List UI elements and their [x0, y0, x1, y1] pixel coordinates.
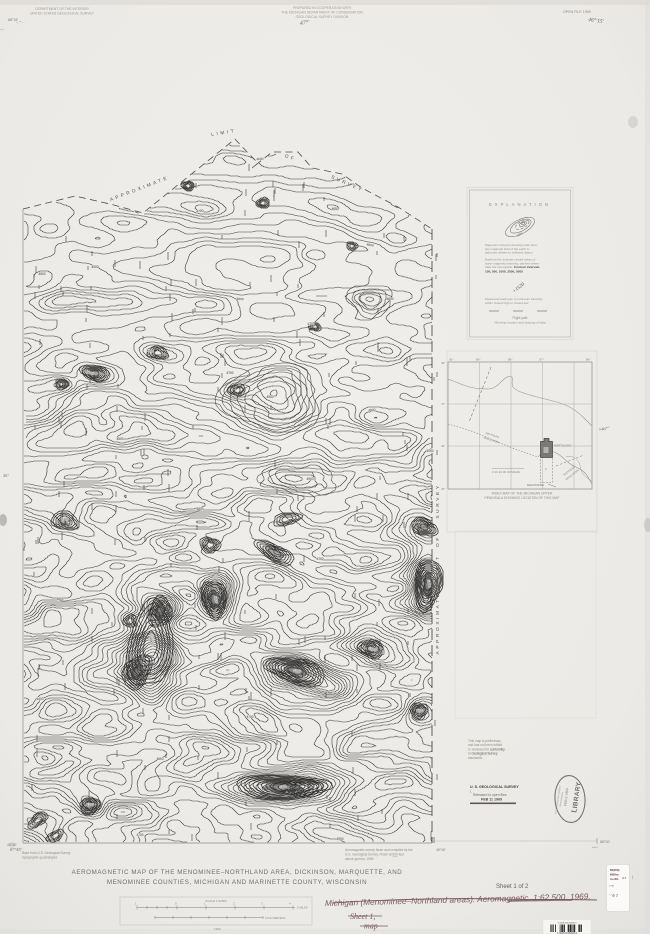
svg-text:89°: 89° — [476, 358, 481, 362]
svg-text:0 10 20 30 40 MILES: 0 10 20 30 40 MILES — [492, 470, 520, 474]
svg-text:Base from U.S. Geological Surv: Base from U.S. Geological Survey — [22, 851, 71, 855]
svg-text:L: L — [470, 790, 472, 794]
svg-text:OPEN FILE 1969: OPEN FILE 1969 — [563, 10, 591, 14]
svg-text:46°: 46° — [3, 473, 9, 478]
svg-text:DEPARTMENT OF THE INTERIOR: DEPARTMENT OF THE INTERIOR — [35, 7, 89, 11]
svg-text:4600: 4600 — [386, 297, 393, 301]
svg-text:MENOMINEE: MENOMINEE — [527, 483, 544, 487]
svg-text:4900: 4900 — [336, 837, 343, 841]
svg-text:AEROMAGNETIC MAP OF THE MENOMI: AEROMAGNETIC MAP OF THE MENOMINEE–NORTHL… — [72, 869, 403, 876]
svg-text:4500: 4500 — [38, 272, 45, 276]
svg-text:4650: 4650 — [331, 207, 338, 211]
svg-text:1969: 1969 — [214, 927, 221, 931]
svg-text:UNITED STATES GEOLOGICAL SURVE: UNITED STATES GEOLOGICAL SURVEY — [30, 12, 95, 16]
svg-text:topographic quadrangles: topographic quadrangles — [22, 855, 57, 859]
svg-text:4900: 4900 — [306, 477, 313, 481]
svg-text:THE MICHIGAN DEPARTMENT OF CON: THE MICHIGAN DEPARTMENT OF CONSERVATION — [281, 11, 363, 15]
svg-text:4900: 4900 — [266, 395, 273, 399]
svg-text:+′″—: +′″— — [16, 19, 26, 25]
svg-text:4800: 4800 — [368, 408, 376, 413]
svg-text:U.S. Geological Survey. Flown: U.S. Geological Survey. Flown at 500 fee… — [345, 852, 404, 856]
svg-text:100, 500, 1000, 2500, 5000: 100, 500, 1000, 2500, 5000 — [485, 269, 523, 273]
svg-text:4400: 4400 — [36, 697, 43, 701]
svg-text:88°00′: 88°00′ — [600, 840, 610, 844]
svg-text:4700: 4700 — [307, 322, 314, 326]
svg-text:INDEX MAP OF THE MICHIGAN UPPE: INDEX MAP OF THE MICHIGAN UPPER — [492, 492, 553, 496]
svg-text:5000: 5000 — [426, 449, 433, 453]
svg-text:4700: 4700 — [226, 371, 233, 375]
svg-text:Sheet 1 of 2: Sheet 1 of 2 — [496, 884, 529, 890]
svg-text:90°: 90° — [449, 358, 454, 362]
svg-text:88°: 88° — [508, 358, 513, 362]
svg-text:LIMIT: LIMIT — [435, 554, 441, 579]
svg-text:Aeromagnetic survey flown and: Aeromagnetic survey flown and compiled b… — [345, 848, 413, 852]
svg-text:′΋′′′?: ′΋′′′? — [609, 885, 614, 889]
svg-text:above ground, 1966: above ground, 1966 — [345, 857, 374, 861]
svg-text:PREPARED IN COOPERATION WITH: PREPARED IN COOPERATION WITH — [293, 6, 352, 10]
svg-text:4800: 4800 — [196, 507, 203, 511]
svg-text:5300: 5300 — [279, 785, 287, 789]
svg-text:SCALE 1:62500: SCALE 1:62500 — [205, 899, 227, 903]
svg-text:4500: 4500 — [91, 265, 98, 269]
svg-text:47°′: 47°′ — [299, 19, 310, 27]
svg-text:no.69-: no.69- — [610, 877, 619, 881]
svg-text:46°: 46° — [441, 444, 446, 448]
svg-text:gammas relative to arbitrary d: gammas relative to arbitrary datum — [485, 251, 533, 255]
svg-text:′ ′′Φ 2: ′ ′′Φ 2 — [609, 894, 618, 898]
svg-text:NORTHLAND: NORTHLAND — [554, 444, 571, 448]
svg-text:—: — — [0, 26, 4, 31]
svg-text:FEB 11 1969: FEB 11 1969 — [481, 798, 502, 802]
svg-text:EXPLANATION: EXPLANATION — [489, 202, 551, 207]
svg-text:87°: 87° — [540, 358, 545, 362]
svg-text:5100: 5100 — [61, 517, 69, 522]
svg-text:86°: 86° — [586, 358, 591, 362]
svg-text:4700: 4700 — [316, 557, 323, 561]
svg-text:6 KILOMETERS: 6 KILOMETERS — [265, 916, 285, 920]
svg-text:4800: 4800 — [236, 297, 244, 302]
svg-text:Released to open files: Released to open files — [473, 793, 507, 797]
svg-text:GEOLOGICAL SURVEY DIVISION: GEOLOGICAL SURVEY DIVISION — [296, 15, 349, 19]
svg-text:PENINSULA SHOWING LOCATION OF: PENINSULA SHOWING LOCATION OF THIS MAP — [485, 496, 561, 500]
svg-text:Sheet 1,: Sheet 1, — [350, 912, 375, 921]
svg-text:45°: 45° — [441, 487, 446, 491]
svg-text:OF: OF — [435, 535, 441, 547]
svg-text:4600: 4600 — [156, 757, 163, 761]
svg-text:MENOMINEE COUNTIES, MICHIGAN A: MENOMINEE COUNTIES, MICHIGAN AND MARINET… — [107, 879, 367, 886]
svg-text:4600: 4600 — [256, 157, 264, 162]
svg-text:within closed high or closed l: within closed high or closed low — [485, 301, 529, 305]
svg-text:5100: 5100 — [86, 803, 93, 807]
svg-text:4500: 4500 — [116, 437, 123, 441]
svg-text:M58m: M58m — [610, 873, 619, 877]
svg-text:M(263): M(263) — [610, 868, 620, 872]
svg-text:Showing location and spacing o: Showing location and spacing of data — [494, 321, 546, 325]
svg-text:4700: 4700 — [246, 715, 253, 719]
svg-text:4700: 4700 — [136, 833, 143, 837]
svg-text:48°: 48° — [441, 361, 446, 365]
svg-text:4600: 4600 — [56, 597, 63, 601]
svg-text:Flight path: Flight path — [513, 316, 528, 320]
svg-text:U. S. GEOLOGICAL SURVEY: U. S. GEOLOGICAL SURVEY — [470, 785, 519, 789]
svg-text:5 MILES: 5 MILES — [297, 906, 308, 910]
svg-text:APPROXIMATE: APPROXIMATE — [435, 592, 441, 655]
svg-text:standards.: standards. — [468, 756, 483, 760]
svg-text:45°45′: 45°45′ — [436, 848, 446, 852]
svg-text:|: | — [632, 874, 633, 879]
svg-text:87°45′: 87°45′ — [10, 847, 23, 852]
svg-text:47°: 47° — [441, 402, 446, 406]
svg-text:3 1818 00132608 4: 3 1818 00132608 4 — [558, 923, 578, 925]
svg-text:5000: 5000 — [416, 709, 423, 713]
svg-text:3.?: 3.? — [621, 876, 627, 880]
